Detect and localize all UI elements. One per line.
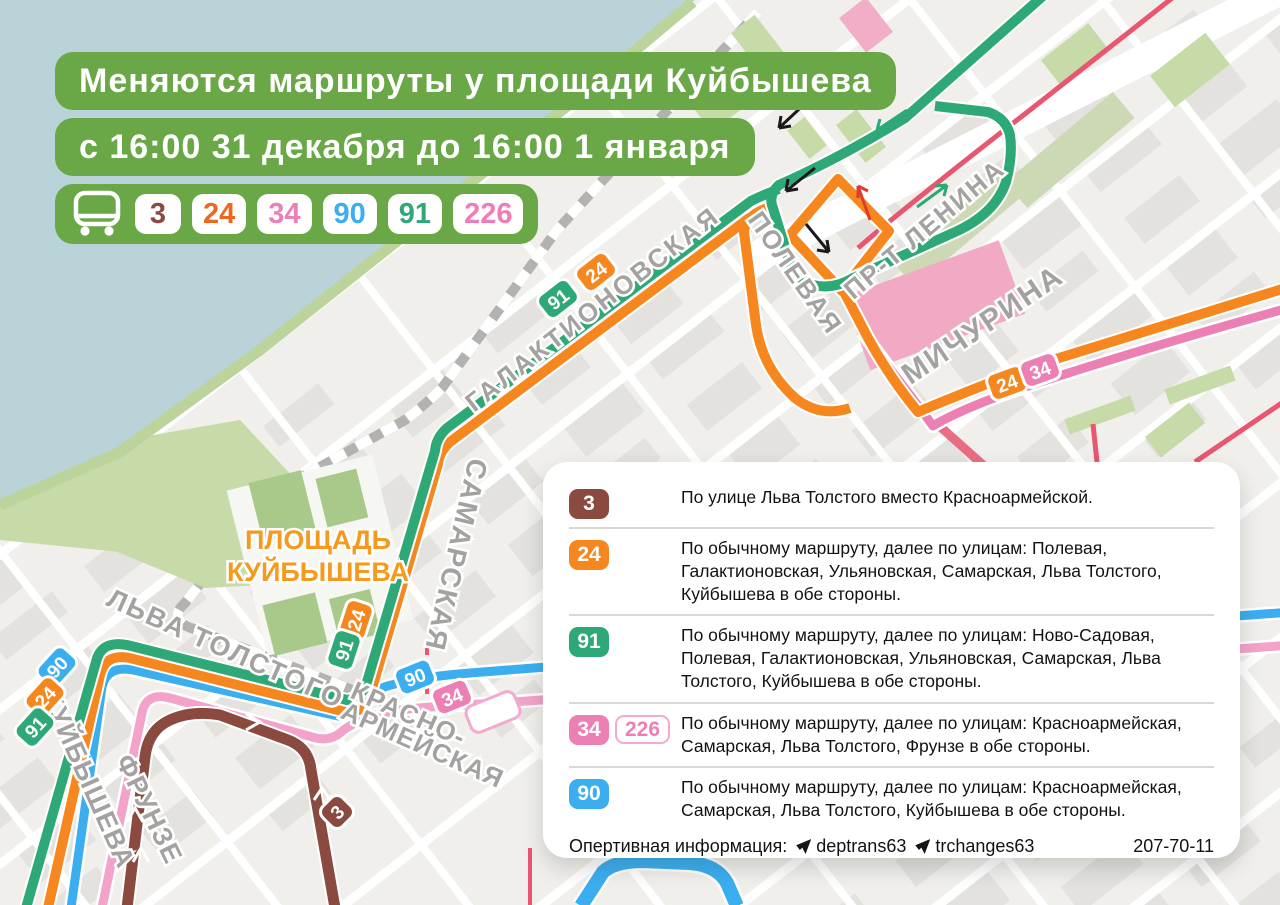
telegram-icon: [796, 839, 811, 854]
channel-name: deptrans63: [816, 836, 906, 857]
header-route-badge-24: 24: [192, 194, 246, 234]
bus-icon: [70, 190, 124, 238]
title-banner: Меняются маршруты у площади Куйбышева: [55, 52, 896, 110]
route-row-91: 91 По обычному маршруту, далее по улицам…: [569, 616, 1214, 701]
telegram-icon: [915, 839, 930, 854]
channel-name: trchanges63: [935, 836, 1034, 857]
route-badge-34: 34: [569, 715, 609, 745]
subtitle-banner: с 16:00 31 декабря до 16:00 1 января: [55, 118, 755, 176]
square-label-line2: КУЙБЫШЕВА: [227, 556, 409, 587]
header-route-badge-226: 226: [453, 194, 523, 234]
route-row-34-226: 34 226 По обычному маршруту, далее по ул…: [569, 704, 1214, 766]
page-title: Меняются маршруты у площади Куйбышева: [79, 62, 872, 100]
square-label-line1: ПЛОЩАДЬ: [245, 525, 391, 555]
header-route-badge-3: 3: [135, 194, 181, 234]
telegram-channel-trchanges63[interactable]: trchanges63: [915, 836, 1034, 857]
route-row-3: 3 По улице Льва Толстого вместо Красноар…: [569, 478, 1214, 527]
route-row-90: 90 По обычному маршруту, далее по улицам…: [569, 768, 1214, 830]
routes-banner: 3 24 34 90 91 226: [55, 184, 538, 244]
phone-number: 207-70-11: [1133, 836, 1214, 857]
route-badge-3: 3: [569, 489, 609, 519]
route-description: По обычному маршруту, далее по улицам: П…: [681, 537, 1214, 606]
route-changes-panel: 3 По улице Льва Толстого вместо Красноар…: [543, 462, 1240, 858]
route-description: По обычному маршруту, далее по улицам: К…: [681, 776, 1214, 822]
route-badge-91: 91: [569, 627, 609, 657]
header-route-badge-91: 91: [388, 194, 442, 234]
route-description: По улице Льва Толстого вместо Красноарме…: [681, 486, 1214, 509]
telegram-channel-deptrans63[interactable]: deptrans63: [796, 836, 906, 857]
route-description: По обычному маршруту, далее по улицам: К…: [681, 712, 1214, 758]
route-description: По обычному маршруту, далее по улицам: Н…: [681, 624, 1214, 693]
infographic: ГАЛАКТИОНОВСКАЯ ПОЛЕВАЯ ПР-Т ЛЕНИНА МИЧУ…: [0, 0, 1280, 905]
header-route-badge-34: 34: [257, 194, 311, 234]
panel-footer: Опертивная информация: deptrans63 trchan…: [569, 830, 1214, 857]
route-badge-90: 90: [569, 779, 609, 809]
header-route-badge-90: 90: [323, 194, 377, 234]
route-badge-24: 24: [569, 540, 609, 570]
footer-label: Опертивная информация:: [569, 836, 787, 857]
map-badge-90: 90: [392, 657, 438, 697]
route-badge-226: 226: [615, 715, 670, 744]
route-row-24: 24 По обычному маршруту, далее по улицам…: [569, 529, 1214, 614]
date-range: с 16:00 31 декабря до 16:00 1 января: [79, 128, 731, 166]
